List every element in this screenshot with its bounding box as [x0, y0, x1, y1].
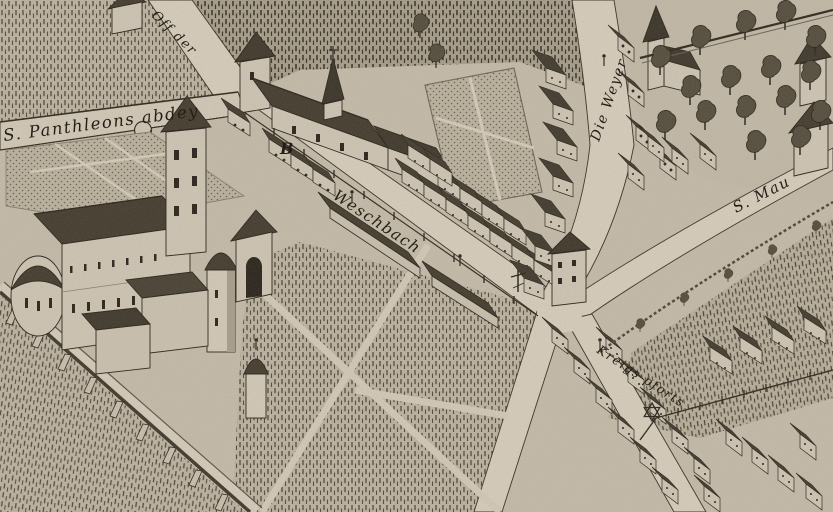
label-marker-b: B — [279, 139, 294, 158]
paper-grain-overlay — [0, 0, 833, 512]
engraved-city-map: S. Panthleons abdey Off der B Weschbach … — [0, 0, 833, 512]
